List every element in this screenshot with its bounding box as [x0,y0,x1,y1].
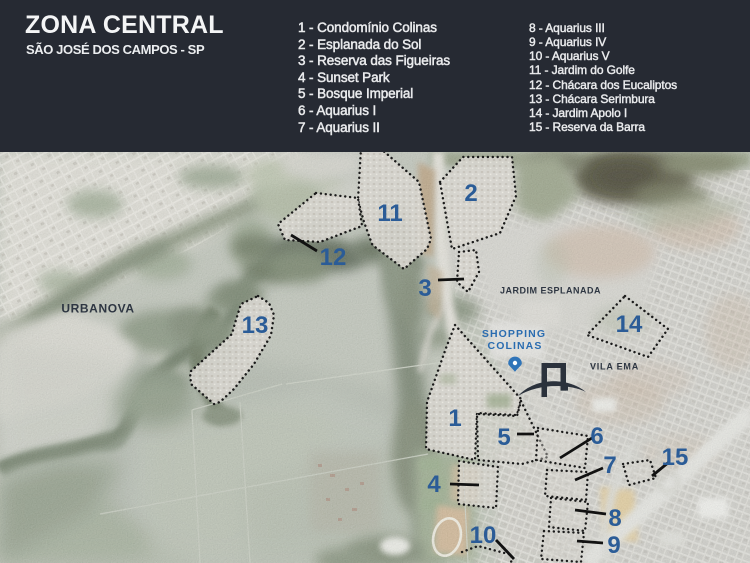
svg-text:14: 14 [616,311,643,338]
svg-text:COLINAS: COLINAS [488,340,543,352]
svg-text:5: 5 [497,424,510,451]
svg-text:10: 10 [470,522,497,549]
svg-text:1: 1 [448,405,461,432]
svg-text:13: 13 [242,312,269,339]
svg-text:URBANOVA: URBANOVA [61,302,134,316]
svg-text:JARDIM ESPLANADA: JARDIM ESPLANADA [500,286,601,296]
svg-text:SHOPPING: SHOPPING [482,328,546,340]
svg-text:9: 9 [607,532,620,559]
svg-text:4: 4 [427,471,441,498]
svg-text:2: 2 [464,180,477,207]
svg-text:15: 15 [662,444,689,471]
svg-text:3: 3 [418,275,431,302]
svg-text:6: 6 [590,423,603,450]
svg-text:11: 11 [377,200,402,227]
svg-text:VILA EMA: VILA EMA [590,362,639,372]
svg-text:12: 12 [320,244,347,271]
svg-text:7: 7 [603,452,616,479]
svg-text:8: 8 [608,505,621,532]
